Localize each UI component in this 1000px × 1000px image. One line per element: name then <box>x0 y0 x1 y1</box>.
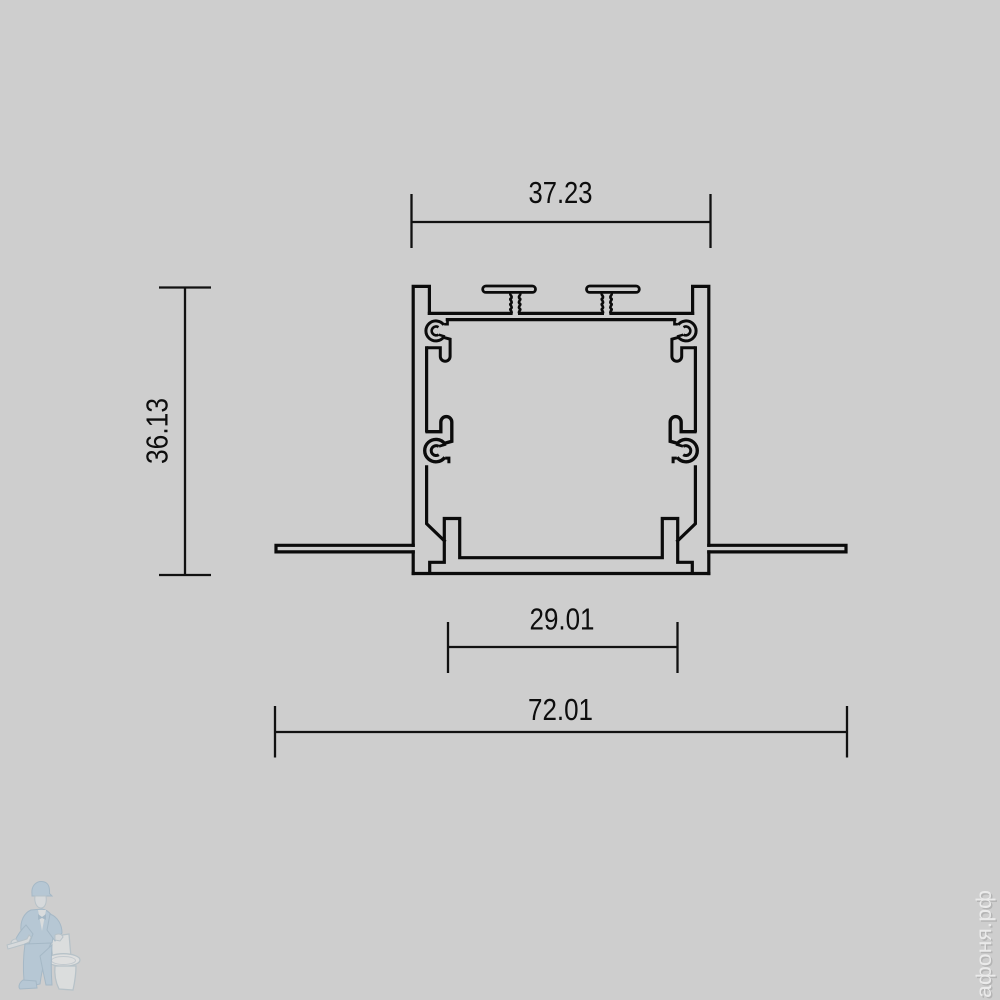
svg-text:37.23: 37.23 <box>529 175 593 210</box>
svg-text:72.01: 72.01 <box>528 692 593 727</box>
svg-text:36.13: 36.13 <box>140 398 175 464</box>
svg-text:афоня.рф: афоня.рф <box>973 890 996 998</box>
svg-text:29.01: 29.01 <box>530 602 595 637</box>
